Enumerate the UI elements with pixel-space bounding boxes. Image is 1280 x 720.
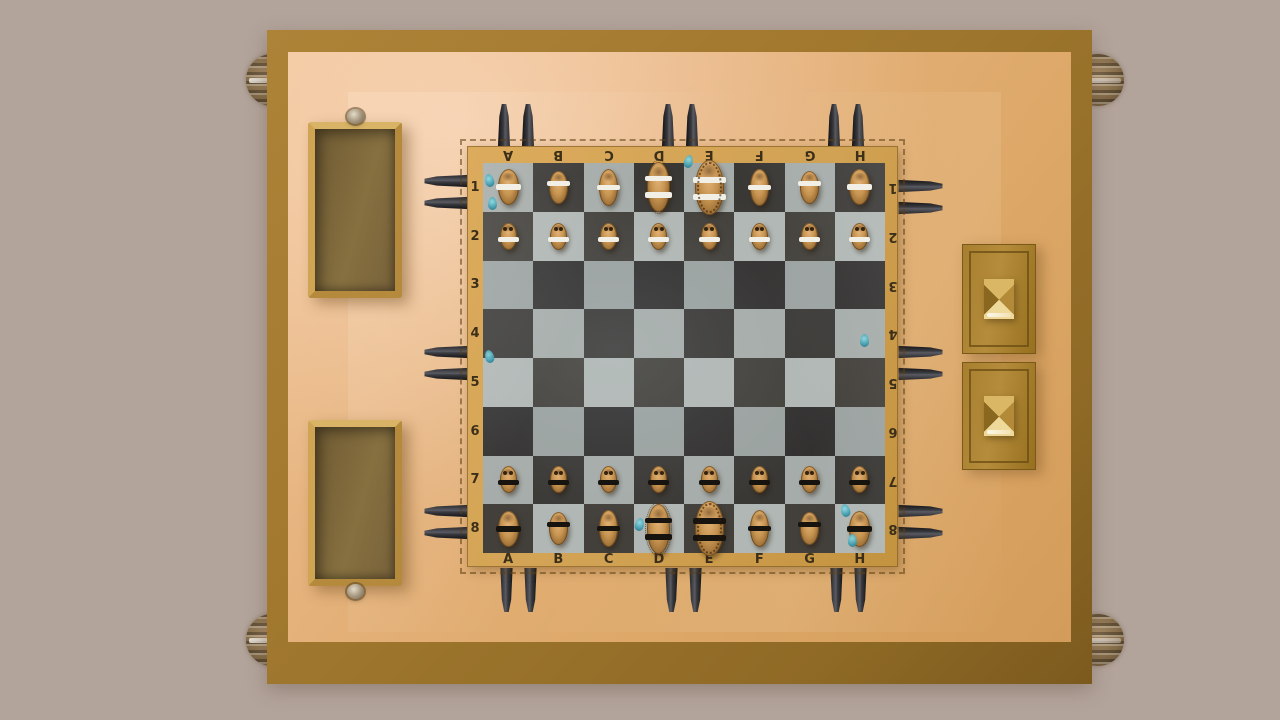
piece-band	[496, 526, 521, 532]
piece-band	[798, 522, 821, 527]
rank-label-right-6: 6	[886, 407, 900, 456]
pawn-eye-dot	[654, 227, 658, 231]
piece-band	[648, 480, 669, 485]
piece-band	[598, 480, 619, 485]
piece-band	[799, 237, 820, 242]
piece-band	[548, 237, 569, 242]
square-e5[interactable]	[684, 358, 734, 407]
rank-label-right-5: 5	[886, 358, 900, 407]
pawn-eye-dot	[805, 227, 809, 231]
rank-label-left-3: 3	[467, 261, 483, 310]
file-label-bottom-c: C	[584, 552, 634, 567]
piece-black-knight-b8[interactable]	[549, 512, 568, 545]
piece-band	[748, 185, 771, 190]
pawn-eye-dot	[660, 227, 664, 231]
piece-band	[648, 237, 669, 242]
piece-black-bishop-f8[interactable]	[750, 510, 769, 547]
pawn-eye-dot	[559, 471, 563, 475]
square-d5[interactable]	[634, 358, 684, 407]
piece-band	[547, 181, 570, 186]
pawn-eye-dot	[855, 471, 859, 475]
piece-white-pawn-c2[interactable]	[600, 223, 617, 250]
file-label-bottom-h: H	[835, 552, 885, 567]
piece-band	[496, 184, 521, 190]
pawn-eye-dot	[861, 471, 865, 475]
square-e3[interactable]	[684, 261, 734, 310]
pawn-eye-dot	[509, 471, 513, 475]
piece-band	[749, 237, 770, 242]
square-h4[interactable]	[835, 309, 885, 358]
turquoise-droplet-2	[488, 197, 497, 210]
pawn-eye-dot	[710, 227, 714, 231]
file-label-top-h: H	[835, 146, 885, 163]
piece-band	[699, 237, 720, 242]
file-label-top-a: A	[483, 146, 533, 163]
piece-band	[547, 522, 570, 527]
square-d4[interactable]	[634, 309, 684, 358]
file-label-bottom-f: F	[734, 552, 784, 567]
rank-label-right-4: 4	[886, 309, 900, 358]
piece-band	[498, 480, 519, 485]
piece-black-pawn-b7[interactable]	[550, 466, 567, 493]
piece-black-pawn-e7[interactable]	[701, 466, 718, 493]
piece-band	[849, 237, 870, 242]
file-label-top-c: C	[584, 146, 634, 163]
square-g6[interactable]	[785, 407, 835, 456]
piece-band	[548, 480, 569, 485]
piece-band	[597, 185, 620, 190]
pawn-eye-dot	[760, 227, 764, 231]
turquoise-droplet-5	[860, 334, 869, 347]
rank-label-right-2: 2	[886, 212, 900, 261]
piece-black-king-e8[interactable]	[695, 501, 724, 556]
square-d6[interactable]	[634, 407, 684, 456]
file-label-top-f: F	[734, 146, 784, 163]
pyramid-knob-2[interactable]	[984, 396, 1014, 436]
square-c3[interactable]	[584, 261, 634, 310]
pawn-eye-dot	[660, 471, 664, 475]
square-a3[interactable]	[483, 261, 533, 310]
square-f4[interactable]	[734, 309, 784, 358]
pawn-eye-dot	[755, 227, 759, 231]
square-e4[interactable]	[684, 309, 734, 358]
piece-band	[598, 237, 619, 242]
square-b3[interactable]	[533, 261, 583, 310]
pawn-eye-dot	[509, 227, 513, 231]
square-a6[interactable]	[483, 407, 533, 456]
square-f6[interactable]	[734, 407, 784, 456]
piece-band	[645, 192, 672, 198]
pawn-eye-dot	[654, 471, 658, 475]
piece-white-pawn-a2[interactable]	[500, 223, 517, 250]
file-label-bottom-b: B	[533, 552, 583, 567]
piece-band	[498, 237, 519, 242]
pawn-eye-dot	[710, 471, 714, 475]
piece-band	[798, 181, 821, 186]
piece-white-rook-a1[interactable]	[498, 169, 519, 205]
pawn-eye-dot	[810, 471, 814, 475]
pyramid-knob-1[interactable]	[984, 279, 1014, 319]
piece-white-knight-b1[interactable]	[549, 171, 568, 204]
square-b4[interactable]	[533, 309, 583, 358]
piece-band	[748, 526, 771, 531]
open-drawer-left-1[interactable]	[308, 122, 402, 298]
piece-band	[749, 480, 770, 485]
piece-white-knight-g1[interactable]	[800, 171, 819, 204]
file-label-bottom-d: D	[634, 552, 684, 567]
pawn-eye-dot	[604, 471, 608, 475]
closed-drawer-right-1[interactable]	[962, 244, 1036, 354]
square-c4[interactable]	[584, 309, 634, 358]
rank-label-left-2: 2	[467, 212, 483, 261]
square-f5[interactable]	[734, 358, 784, 407]
rank-label-right-7: 7	[886, 456, 900, 505]
pawn-eye-dot	[805, 471, 809, 475]
rank-label-left-4: 4	[467, 309, 483, 358]
piece-band	[645, 176, 672, 181]
square-h6[interactable]	[835, 407, 885, 456]
pawn-eye-dot	[559, 227, 563, 231]
piece-white-pawn-f2[interactable]	[751, 223, 768, 250]
square-c6[interactable]	[584, 407, 634, 456]
piece-band	[645, 534, 672, 540]
square-b5[interactable]	[533, 358, 583, 407]
piece-band	[849, 480, 870, 485]
piece-band	[799, 480, 820, 485]
closed-drawer-right-2[interactable]	[962, 362, 1036, 470]
pawn-eye-dot	[554, 471, 558, 475]
piece-white-king-e1[interactable]	[695, 160, 724, 215]
pawn-eye-dot	[810, 227, 814, 231]
drawer-knob-2[interactable]	[347, 584, 364, 599]
file-label-top-d: D	[634, 146, 684, 163]
piece-band	[847, 526, 872, 532]
file-label-top-b: B	[533, 146, 583, 163]
pawn-eye-dot	[609, 227, 613, 231]
piece-white-pawn-e2[interactable]	[701, 223, 718, 250]
pawn-eye-dot	[755, 471, 759, 475]
file-label-top-g: G	[785, 146, 835, 163]
pawn-eye-dot	[554, 227, 558, 231]
rank-label-left-5: 5	[467, 358, 483, 407]
file-label-bottom-a: A	[483, 552, 533, 567]
pawn-eye-dot	[760, 471, 764, 475]
square-f3[interactable]	[734, 261, 784, 310]
square-a5[interactable]	[483, 358, 533, 407]
square-h5[interactable]	[835, 358, 885, 407]
pawn-eye-dot	[704, 227, 708, 231]
pawn-eye-dot	[503, 227, 507, 231]
pawn-eye-dot	[604, 227, 608, 231]
pawn-eye-dot	[503, 471, 507, 475]
piece-black-pawn-f7[interactable]	[751, 466, 768, 493]
rank-label-right-3: 3	[886, 261, 900, 310]
rank-label-left-8: 8	[467, 504, 483, 553]
drawer-knob-1[interactable]	[347, 109, 364, 124]
pawn-eye-dot	[704, 471, 708, 475]
rank-label-left-1: 1	[467, 163, 483, 212]
rank-label-right-1: 1	[886, 163, 900, 212]
piece-black-pawn-a7[interactable]	[500, 466, 517, 493]
scene-3d-chess-table: { "scene": { "background_color": "#b3a49…	[0, 0, 1280, 720]
square-e6[interactable]	[684, 407, 734, 456]
pawn-eye-dot	[609, 471, 613, 475]
square-h3[interactable]	[835, 261, 885, 310]
square-c5[interactable]	[584, 358, 634, 407]
piece-white-bishop-c1[interactable]	[599, 169, 618, 206]
piece-white-bishop-f1[interactable]	[750, 169, 769, 206]
king-crown-ring	[697, 162, 722, 213]
square-b6[interactable]	[533, 407, 583, 456]
rank-label-right-8: 8	[886, 504, 900, 553]
piece-black-rook-a8[interactable]	[498, 511, 519, 547]
chess-board-frame: AABBCCDDEEFFGGHH1122334455667788	[467, 146, 898, 567]
rank-label-left-7: 7	[467, 456, 483, 505]
square-g3[interactable]	[785, 261, 835, 310]
pawn-eye-dot	[861, 227, 865, 231]
piece-band	[597, 526, 620, 531]
piece-white-pawn-b2[interactable]	[550, 223, 567, 250]
rank-label-left-6: 6	[467, 407, 483, 456]
king-crown-ring	[697, 503, 722, 554]
piece-band	[847, 184, 872, 190]
piece-white-pawn-g2[interactable]	[801, 223, 818, 250]
open-drawer-left-2[interactable]	[308, 420, 402, 586]
file-label-bottom-g: G	[785, 552, 835, 567]
piece-band	[645, 518, 672, 523]
square-g5[interactable]	[785, 358, 835, 407]
turquoise-droplet-8	[848, 534, 857, 547]
square-d3[interactable]	[634, 261, 684, 310]
piece-band	[699, 480, 720, 485]
pawn-eye-dot	[855, 227, 859, 231]
square-g4[interactable]	[785, 309, 835, 358]
